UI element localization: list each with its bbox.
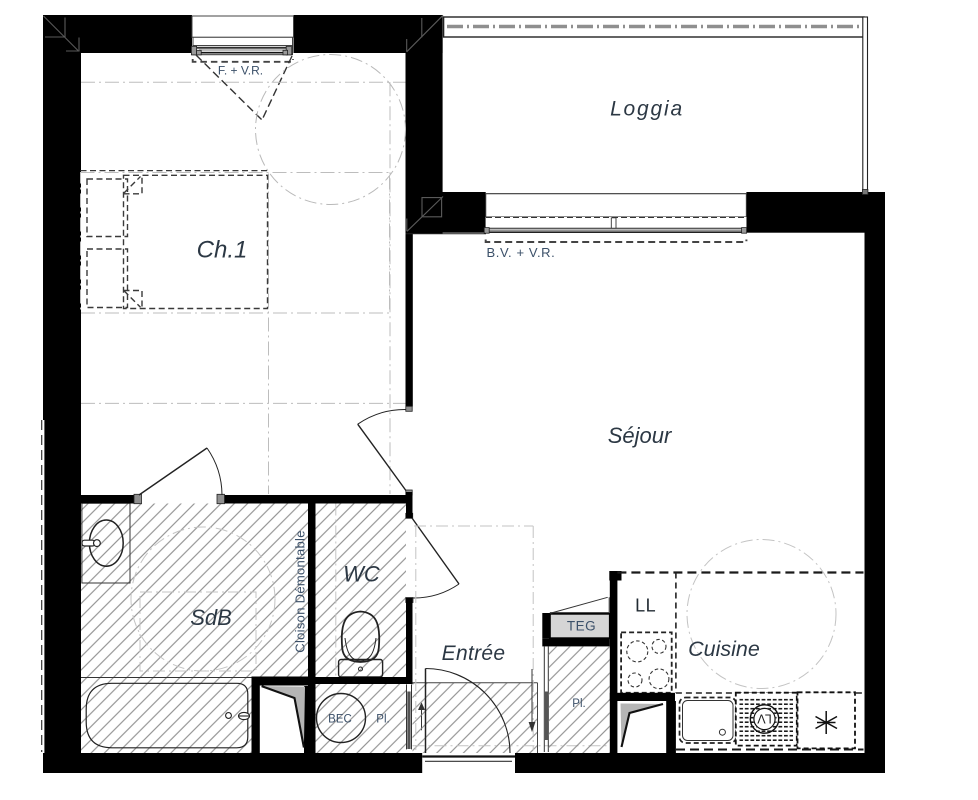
svg-text:LV: LV [757, 712, 772, 726]
svg-text:Ch.1: Ch.1 [197, 237, 248, 264]
svg-text:Pl.: Pl. [572, 698, 585, 710]
svg-text:B.V. + V.R.: B.V. + V.R. [487, 245, 556, 260]
svg-text:F. + V.R.: F. + V.R. [218, 64, 263, 78]
svg-text:Pl.: Pl. [376, 714, 389, 726]
svg-text:Cloison Démontable: Cloison Démontable [293, 530, 308, 652]
svg-text:Cuisine: Cuisine [688, 637, 760, 661]
svg-text:Loggia: Loggia [610, 98, 684, 121]
svg-text:TEG: TEG [567, 619, 596, 634]
svg-text:LL: LL [635, 596, 656, 616]
svg-text:Entrée: Entrée [442, 642, 506, 665]
svg-text:Séjour: Séjour [608, 423, 673, 448]
svg-text:WC: WC [343, 562, 380, 587]
svg-text:BEC: BEC [328, 714, 352, 726]
svg-text:SdB: SdB [190, 605, 232, 630]
